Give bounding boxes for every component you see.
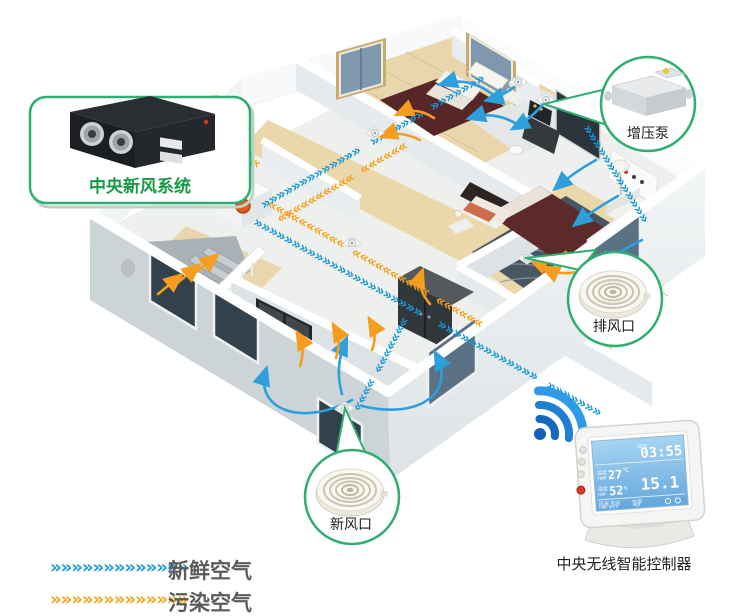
screen-hum-label-en: HUM: [598, 491, 606, 497]
controller-device: WED 03:55 温度 TEMP 27 ℃ 湿度 HUM 52 % 15.1 …: [573, 420, 706, 548]
hrv-callout-box: 中央新风系统: [30, 96, 253, 207]
legend-fresh-label: 新鲜空气: [168, 559, 252, 583]
screen-main-value: 15.1: [640, 472, 680, 494]
screen-temp-unit: ℃: [622, 467, 629, 474]
scene: »»»»»»»»»»»»»»»»»»»»»» »»»»»»»»»»»»» »»»…: [0, 0, 750, 616]
controller-button[interactable]: [579, 446, 586, 453]
ventilation-diagram: »»»»»»»»»»»»»»»»»»»»»» »»»»»»»»»»»»» »»»…: [0, 0, 750, 616]
screen-hum-value: 52: [609, 483, 624, 498]
screen-temp-value: 27: [607, 467, 622, 482]
legend-polluted-label: 污染空气: [168, 591, 252, 615]
controller-label: 中央无线智能控制器: [556, 555, 691, 573]
screen-temp-label-en: TEMP: [597, 475, 608, 481]
legend: »»»»»»»»»»»»» 新鲜空气 »»»»»»»»»»»»» 污染空气: [50, 557, 252, 615]
controller-power-button[interactable]: [577, 486, 586, 495]
controller-button[interactable]: [578, 458, 585, 465]
controller-button[interactable]: [577, 470, 584, 477]
screen-mode-label-en: MED: [633, 502, 641, 508]
booster-label: 增压泵: [627, 125, 669, 141]
hrv-label: 中央新风系统: [89, 176, 191, 196]
wall-knob: [121, 259, 135, 277]
fresh-vent-label: 新风口: [330, 516, 372, 532]
exhaust-vent-label: 排风口: [593, 318, 635, 334]
